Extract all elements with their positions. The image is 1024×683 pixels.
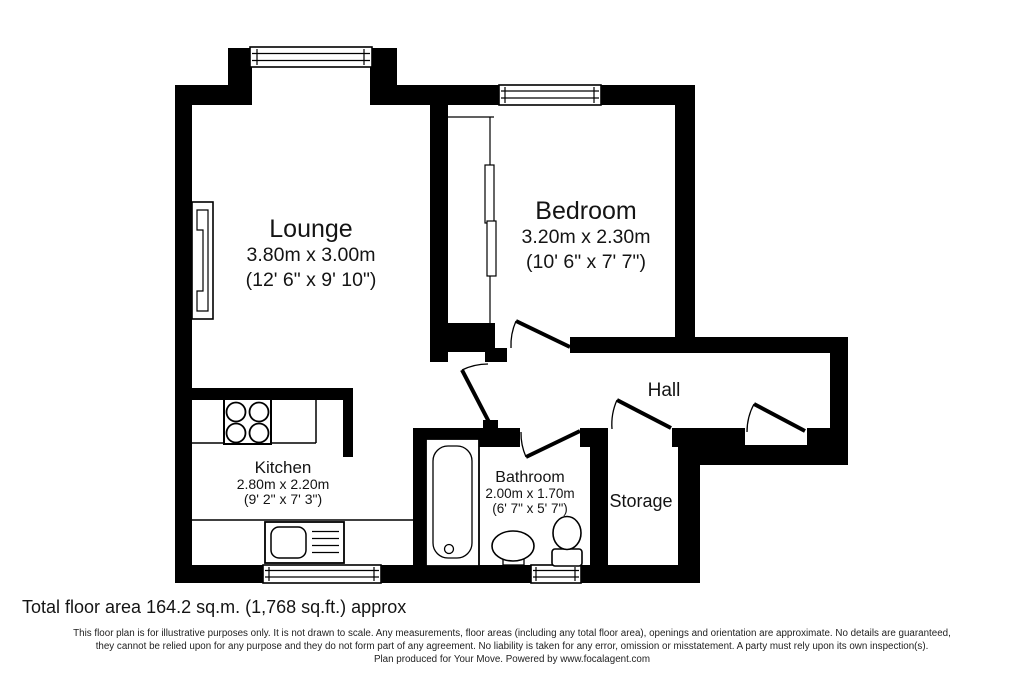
disclaimer-line-1: This floor plan is for illustrative purp… bbox=[0, 627, 1024, 640]
radiator-icon bbox=[192, 202, 213, 319]
bedroom-metric-dimensions: 3.20m x 2.30m bbox=[522, 225, 651, 250]
bathroom-door bbox=[521, 431, 580, 457]
floorplan-page: Lounge 3.80m x 3.00m (12' 6" x 9' 10") B… bbox=[0, 0, 1024, 683]
bathroom-imperial-dimensions: (6' 7" x 5' 7") bbox=[485, 501, 574, 516]
floor-plan-drawing bbox=[0, 0, 1024, 683]
storage-name: Storage bbox=[609, 491, 672, 511]
lounge-name: Lounge bbox=[246, 216, 377, 243]
hall-name: Hall bbox=[648, 380, 681, 401]
kitchen-window bbox=[263, 565, 381, 583]
room-label-bedroom: Bedroom 3.20m x 2.30m (10' 6" x 7' 7") bbox=[522, 198, 651, 275]
storage-door bbox=[612, 400, 671, 429]
basin-icon bbox=[492, 531, 534, 565]
bedroom-name: Bedroom bbox=[522, 198, 651, 225]
total-floor-area: Total floor area 164.2 sq.m. (1,768 sq.f… bbox=[22, 597, 406, 618]
front-door bbox=[747, 404, 805, 432]
disclaimer-line-3: Plan produced for Your Move. Powered by … bbox=[0, 653, 1024, 666]
toilet-icon bbox=[552, 517, 582, 567]
wardrobe-icon bbox=[448, 117, 496, 325]
lounge-metric-dimensions: 3.80m x 3.00m bbox=[246, 243, 377, 268]
bedroom-window bbox=[499, 85, 601, 105]
bathroom-metric-dimensions: 2.00m x 1.70m bbox=[485, 486, 574, 501]
bathtub-icon bbox=[426, 439, 479, 566]
room-label-bathroom: Bathroom 2.00m x 1.70m (6' 7" x 5' 7") bbox=[485, 469, 574, 516]
bathroom-window bbox=[531, 565, 581, 583]
lounge-imperial-dimensions: (12' 6" x 9' 10") bbox=[246, 268, 377, 293]
kitchen-sink-icon bbox=[265, 522, 344, 563]
disclaimer-text: This floor plan is for illustrative purp… bbox=[0, 627, 1024, 667]
lounge-door bbox=[462, 364, 489, 422]
room-label-lounge: Lounge 3.80m x 3.00m (12' 6" x 9' 10") bbox=[246, 216, 377, 293]
bedroom-door bbox=[511, 321, 570, 348]
kitchen-metric-dimensions: 2.80m x 2.20m bbox=[237, 477, 330, 492]
hob-icon bbox=[224, 399, 271, 444]
kitchen-name: Kitchen bbox=[237, 458, 330, 477]
lounge-bay-window bbox=[250, 47, 372, 67]
room-label-kitchen: Kitchen 2.80m x 2.20m (9' 2" x 7' 3") bbox=[237, 458, 330, 507]
room-label-storage: Storage bbox=[609, 492, 672, 511]
bedroom-imperial-dimensions: (10' 6" x 7' 7") bbox=[522, 250, 651, 275]
disclaimer-line-2: they cannot be relied upon for any purpo… bbox=[0, 640, 1024, 653]
kitchen-imperial-dimensions: (9' 2" x 7' 3") bbox=[237, 492, 330, 507]
bathroom-name: Bathroom bbox=[485, 469, 574, 486]
room-label-hall: Hall bbox=[648, 381, 681, 400]
